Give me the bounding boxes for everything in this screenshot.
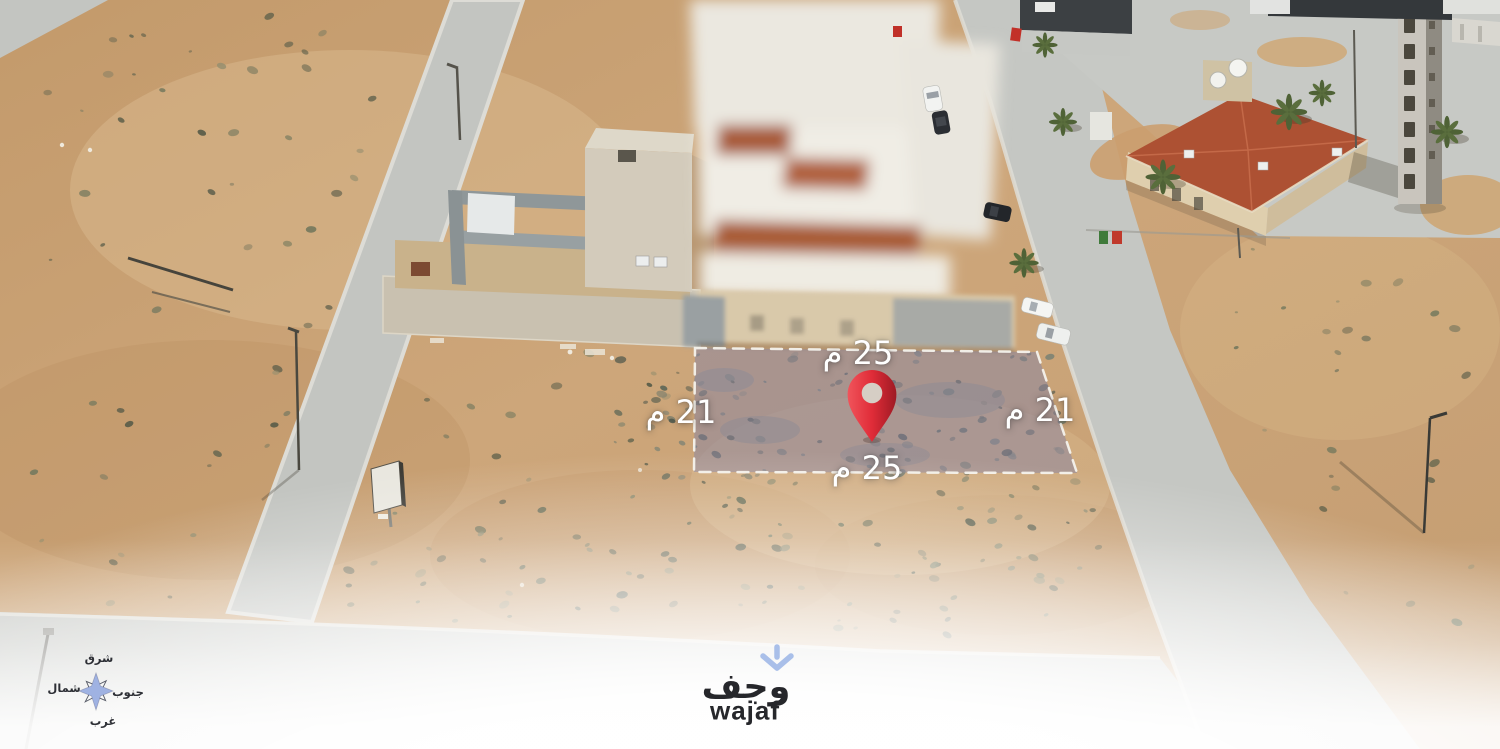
compass-label-west: غرب [90,714,117,728]
compass-label-east: شرق [85,651,114,665]
plot-dimension-left: 21 م [646,393,717,431]
wajaf-latin-name: wajaf [710,696,780,727]
plot-dimension-top: 25 م [823,334,894,372]
plot-dimension-right: 21 م [1005,391,1076,429]
compass-label-north: شمال [47,681,80,695]
aerial-scene [0,0,1500,749]
aerial-plot-photo: 25 م 25 م 21 م 21 م شرق شمال جنوب غرب وج… [0,0,1500,749]
plot-dimension-bottom: 25 م [832,449,903,487]
compass-label-south: جنوب [112,685,144,699]
